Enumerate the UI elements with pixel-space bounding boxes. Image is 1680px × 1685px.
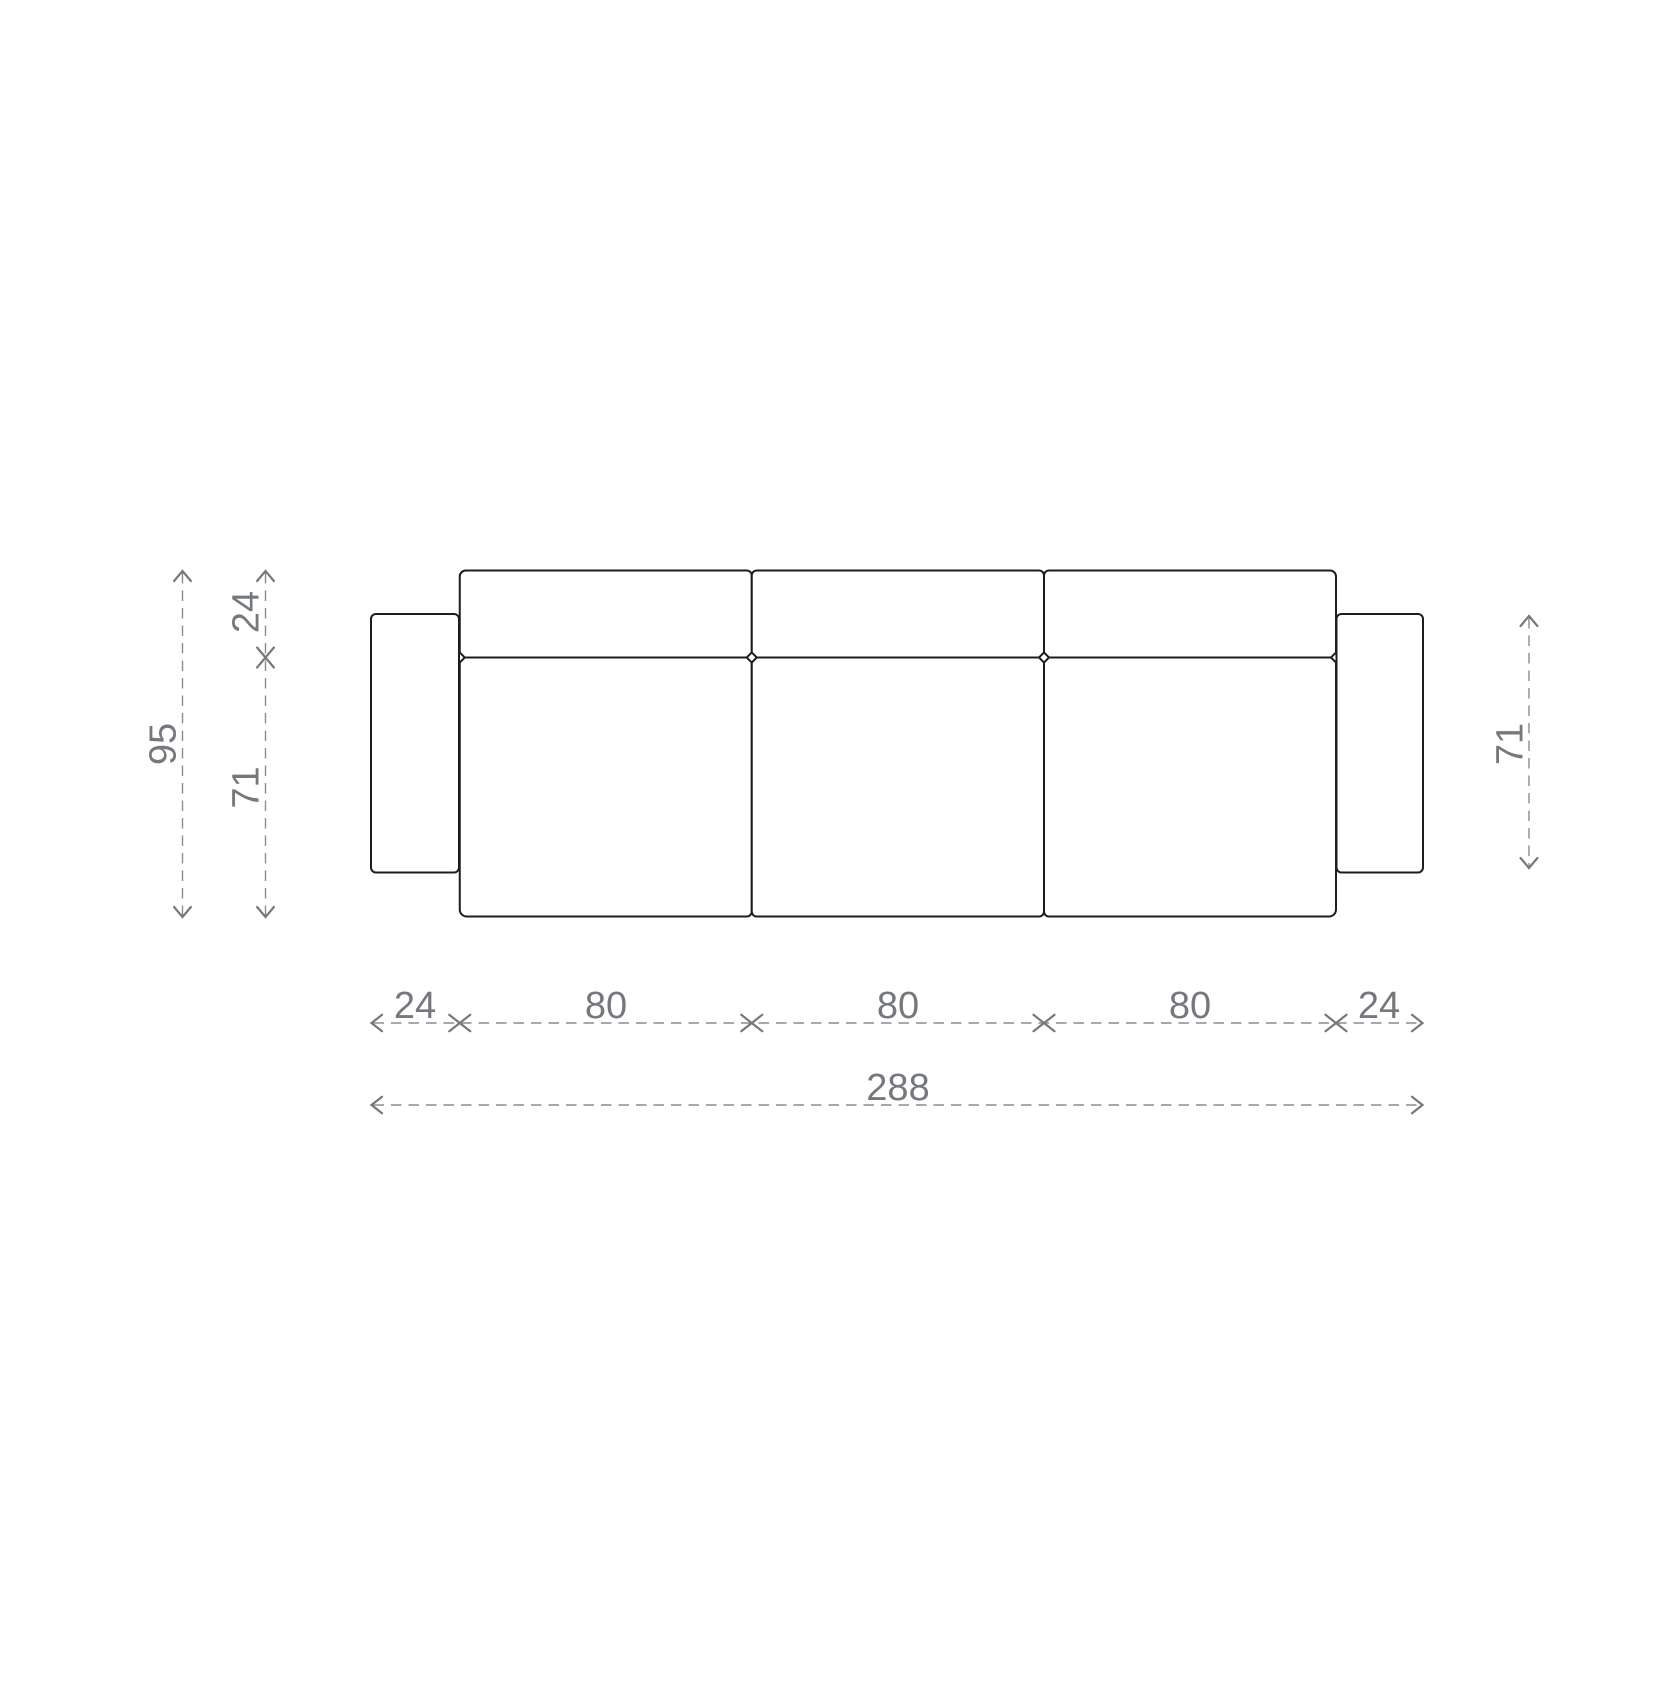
svg-text:80: 80: [877, 985, 919, 1027]
svg-text:24: 24: [394, 985, 436, 1027]
svg-text:24: 24: [226, 591, 268, 633]
svg-text:24: 24: [1358, 985, 1400, 1027]
svg-text:80: 80: [1169, 985, 1211, 1027]
svg-text:71: 71: [226, 766, 268, 808]
svg-text:71: 71: [1490, 723, 1532, 765]
svg-text:288: 288: [866, 1067, 929, 1109]
svg-text:95: 95: [143, 723, 185, 765]
svg-text:80: 80: [585, 985, 627, 1027]
